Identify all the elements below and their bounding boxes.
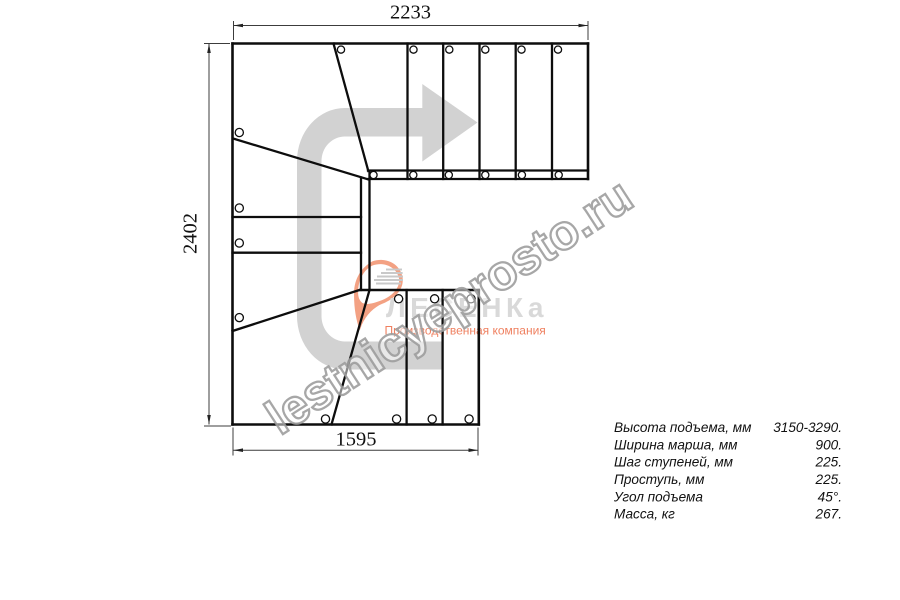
svg-text:Масса, кг: Масса, кг	[614, 507, 675, 522]
svg-text:2233: 2233	[390, 2, 431, 24]
svg-text:Высота подъема, мм: Высота подъема, мм	[614, 420, 752, 435]
svg-text:2402: 2402	[180, 213, 202, 254]
svg-text:225.: 225.	[815, 455, 842, 470]
svg-text:Ширина марша, мм: Ширина марша, мм	[614, 437, 738, 452]
svg-text:900.: 900.	[816, 437, 842, 452]
svg-text:267.: 267.	[815, 507, 842, 522]
svg-text:225.: 225.	[815, 472, 842, 487]
svg-text:3150-3290.: 3150-3290.	[773, 420, 842, 435]
svg-text:Угол подъема: Угол подъема	[613, 489, 703, 504]
svg-text:45°.: 45°.	[818, 489, 842, 504]
svg-text:Проступь, мм: Проступь, мм	[614, 472, 705, 487]
svg-text:1595: 1595	[336, 429, 377, 451]
svg-text:Шаг ступеней, мм: Шаг ступеней, мм	[614, 455, 734, 470]
